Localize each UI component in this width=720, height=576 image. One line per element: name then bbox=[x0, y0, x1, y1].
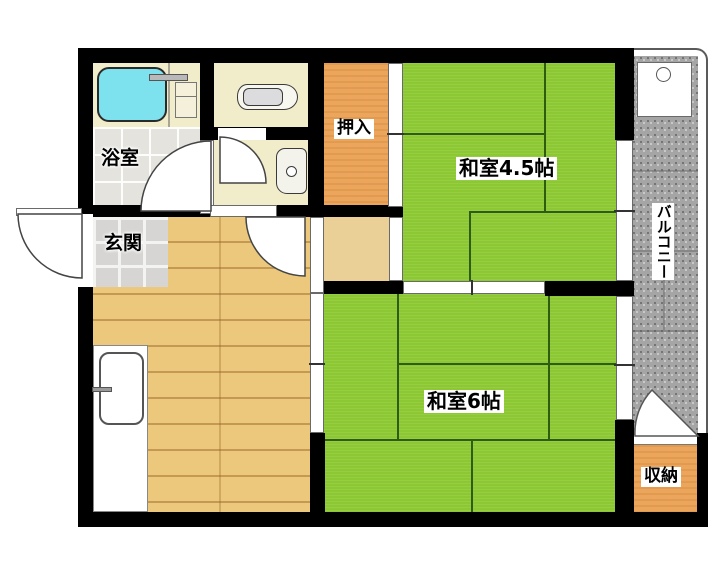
bath-faucet bbox=[149, 74, 188, 81]
bath-deck-edge bbox=[168, 63, 170, 127]
kitchen-faucet bbox=[92, 387, 112, 392]
washroom-door-swing bbox=[220, 137, 266, 183]
entrance-label: 玄関 bbox=[104, 234, 142, 254]
washbasin-drain bbox=[286, 166, 297, 177]
balcony-label: バルコニー bbox=[652, 203, 674, 280]
floor-plan: 浴室 玄関 押入 和室4.5帖 和室6帖 バルコニー 収納 bbox=[0, 0, 720, 576]
balcony-partition-swing bbox=[635, 390, 698, 436]
toilet-seat bbox=[243, 88, 283, 106]
room45-label: 和室4.5帖 bbox=[456, 157, 557, 180]
room6-label: 和室6帖 bbox=[424, 390, 504, 413]
bath-door-swing bbox=[141, 141, 211, 211]
bath-mixer-divider bbox=[175, 96, 197, 97]
washing-machine-drain bbox=[656, 67, 671, 82]
front-door-swing bbox=[18, 214, 82, 278]
bath-label: 浴室 bbox=[101, 149, 139, 169]
dk-door-swing bbox=[246, 217, 305, 276]
storage-label: 収納 bbox=[641, 467, 681, 487]
bath-mixer-unit bbox=[175, 82, 197, 118]
closet-label: 押入 bbox=[334, 119, 374, 139]
